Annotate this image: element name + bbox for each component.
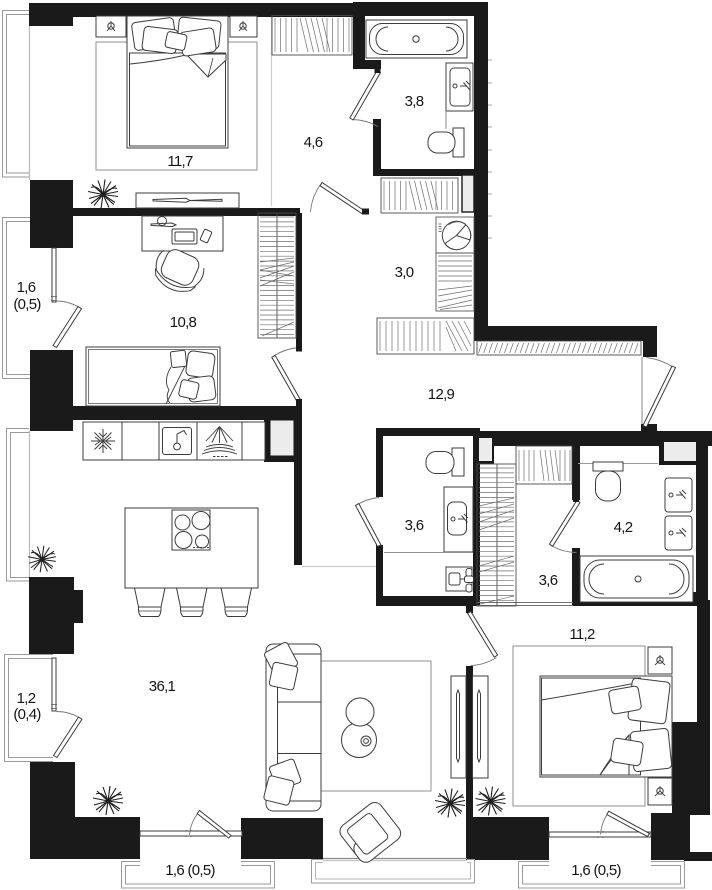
svg-text:3,8: 3,8 — [405, 93, 424, 110]
svg-text:(0,5): (0,5) — [13, 296, 41, 313]
svg-text:36,1: 36,1 — [149, 678, 176, 695]
svg-text:1,2: 1,2 — [17, 690, 36, 707]
svg-text:3,0: 3,0 — [395, 264, 414, 281]
svg-text:1,6 (0,5): 1,6 (0,5) — [571, 862, 621, 879]
svg-text:10,8: 10,8 — [170, 314, 197, 331]
svg-text:4,2: 4,2 — [614, 519, 633, 536]
svg-text:4,6: 4,6 — [304, 134, 323, 151]
svg-text:1,6: 1,6 — [17, 279, 36, 296]
svg-text:3,6: 3,6 — [539, 572, 558, 589]
svg-text:(0,4): (0,4) — [13, 706, 41, 723]
svg-text:11,7: 11,7 — [167, 153, 193, 170]
svg-text:12,9: 12,9 — [428, 386, 455, 403]
svg-text:3,6: 3,6 — [405, 517, 424, 534]
svg-text:1,6 (0,5): 1,6 (0,5) — [165, 862, 215, 879]
svg-text:11,2: 11,2 — [569, 626, 595, 643]
